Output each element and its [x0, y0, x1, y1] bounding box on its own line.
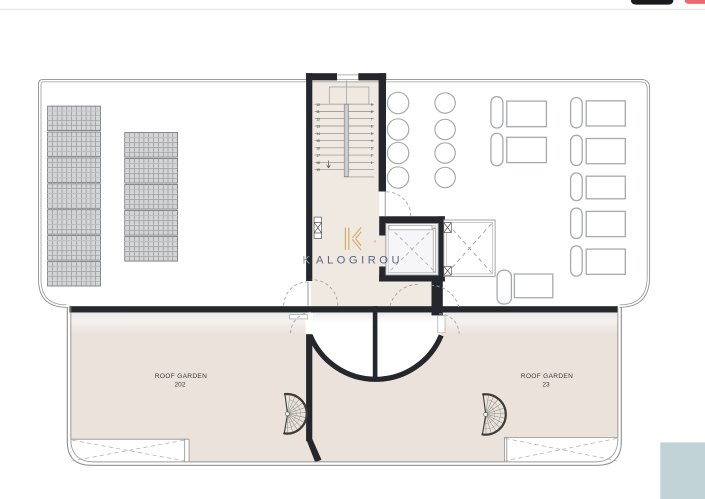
svg-text:9: 9	[371, 103, 373, 107]
svg-text:2: 2	[371, 154, 373, 158]
svg-text:14: 14	[316, 132, 320, 136]
svg-text:3: 3	[371, 146, 373, 150]
svg-text:5: 5	[371, 132, 373, 136]
svg-text:19: 19	[316, 168, 320, 172]
svg-text:17: 17	[316, 154, 320, 158]
svg-text:ROOF GARDEN: ROOF GARDEN	[155, 373, 207, 380]
svg-text:23: 23	[542, 382, 550, 389]
svg-text:7: 7	[371, 117, 373, 121]
svg-text:18: 18	[316, 161, 320, 165]
svg-text:6: 6	[371, 125, 373, 129]
svg-text:ROOF GARDEN: ROOF GARDEN	[521, 373, 573, 380]
svg-text:202: 202	[174, 382, 185, 389]
svg-text:1: 1	[371, 161, 373, 165]
svg-text:15: 15	[316, 139, 320, 143]
svg-text:13: 13	[316, 125, 320, 129]
svg-text:12: 12	[316, 117, 320, 121]
svg-text:10: 10	[316, 103, 320, 107]
svg-text:8: 8	[371, 110, 373, 114]
svg-text:4: 4	[371, 139, 373, 143]
svg-text:ALOGIROU: ALOGIROU	[316, 255, 403, 267]
svg-text:K: K	[303, 255, 314, 267]
svg-text:11: 11	[316, 110, 320, 114]
svg-text:16: 16	[316, 146, 320, 150]
